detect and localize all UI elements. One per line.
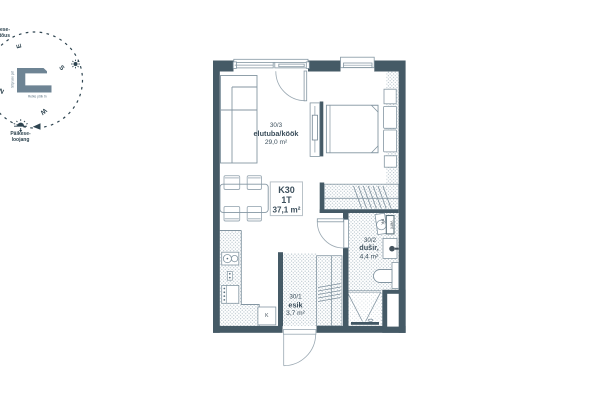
svg-text:dušir,: dušir,: [359, 243, 378, 252]
svg-text:30/3: 30/3: [270, 122, 283, 129]
svg-text:Sõpruse pst: Sõpruse pst: [11, 71, 15, 88]
svg-text:esik: esik: [288, 300, 303, 309]
svg-text:37,1 m²: 37,1 m²: [273, 205, 301, 214]
svg-text:loojang: loojang: [12, 137, 30, 143]
svg-text:K30: K30: [278, 185, 295, 195]
svg-text:1T: 1T: [281, 195, 292, 205]
svg-text:Retke põik tn: Retke põik tn: [28, 95, 47, 99]
svg-text:vent: vent: [389, 221, 394, 230]
svg-text:29,0 m²: 29,0 m²: [265, 139, 288, 146]
svg-text:4,4 m²: 4,4 m²: [360, 253, 379, 260]
svg-text:PK: PK: [380, 218, 386, 225]
svg-text:tõus: tõus: [0, 33, 10, 39]
svg-text:elutuba/köök: elutuba/köök: [253, 129, 299, 138]
svg-text:3,7 m²: 3,7 m²: [286, 310, 305, 317]
